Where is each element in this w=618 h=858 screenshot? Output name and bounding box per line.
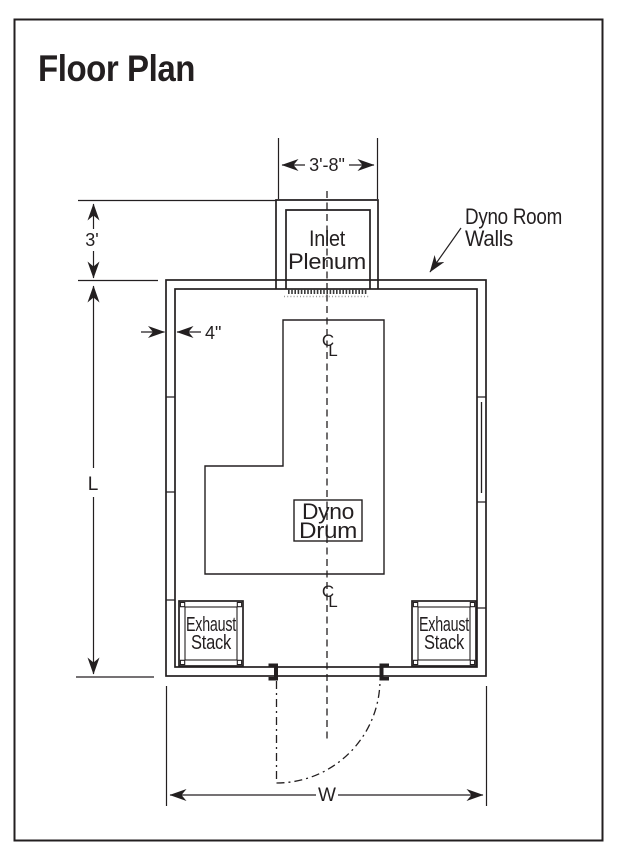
room-width-value: W <box>318 785 336 806</box>
jamb-bar <box>274 664 278 681</box>
centerline-symbol-l: L <box>328 592 337 611</box>
dimension-room-length: L <box>76 286 154 677</box>
dyno-drum-label-line2: Drum <box>299 518 357 543</box>
plenum-width-value: 3'-8" <box>309 155 345 175</box>
leader-arrow <box>430 228 461 272</box>
exhaust-stack-right: Exhaust Stack <box>412 601 476 666</box>
exhaust-stack-label-line2: Stack <box>424 632 465 654</box>
floor-plan-page: Floor Plan Inlet Plenum 3'-8" 3' L <box>0 0 618 858</box>
page-title: Floor Plan <box>38 48 195 89</box>
jamb-cap-bottom <box>384 677 390 681</box>
plenum-setback-value: 3' <box>85 230 98 250</box>
jamb-bar <box>380 664 384 681</box>
jamb-cap-top <box>269 664 275 668</box>
centerline-symbol-l: L <box>328 341 337 360</box>
dyno-drum: Dyno Drum <box>294 499 362 543</box>
centerline-symbol-bottom: C L <box>322 582 338 611</box>
door <box>269 664 390 784</box>
extension-lines <box>78 201 276 281</box>
centerline-symbol-top: C L <box>322 331 338 360</box>
inlet-plenum-label-line2: Plenum <box>288 249 366 274</box>
exhaust-stack-label-line2: Stack <box>191 632 232 654</box>
dimension-plenum-width: 3'-8" <box>279 138 378 199</box>
door-jamb-right <box>380 664 390 681</box>
room-length-value: L <box>88 474 99 495</box>
jamb-cap-top <box>384 664 390 668</box>
page-border <box>15 20 603 841</box>
floor-plan-drawing: Floor Plan Inlet Plenum 3'-8" 3' L <box>0 0 618 858</box>
wall-thickness-value: 4" <box>205 323 221 343</box>
dimension-wall-thickness: 4" <box>141 323 221 343</box>
inlet-plenum-label-line1: Inlet <box>309 226 345 251</box>
dyno-room-walls-label-line2: Walls <box>465 226 513 251</box>
door-jamb-left <box>269 664 279 681</box>
exhaust-stack-left: Exhaust Stack <box>179 601 243 666</box>
dimension-plenum-setback: 3' <box>78 201 276 281</box>
door-swing-arc <box>277 680 381 784</box>
dyno-room-walls-callout: Dyno Room Walls <box>430 204 562 272</box>
jamb-cap-bottom <box>269 677 275 681</box>
